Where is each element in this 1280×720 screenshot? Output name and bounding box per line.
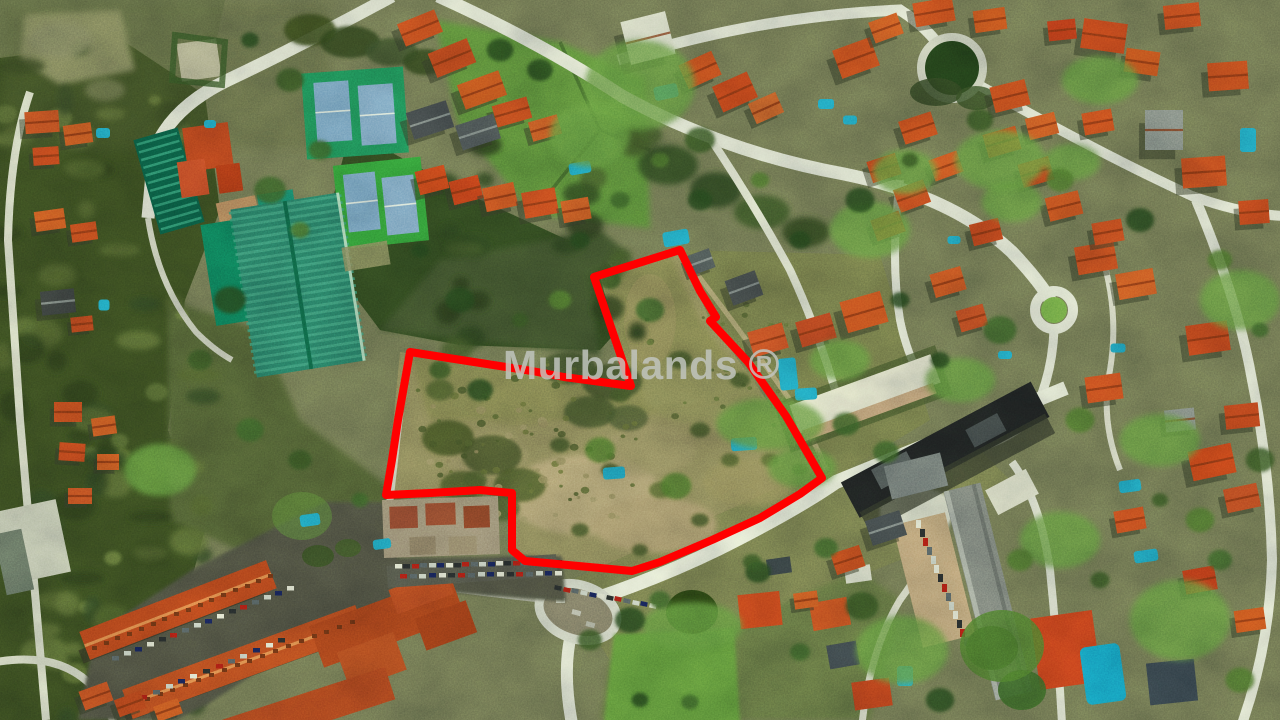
svg-text:R: R (756, 351, 773, 377)
svg-text:Murbalands: Murbalands (503, 342, 738, 388)
